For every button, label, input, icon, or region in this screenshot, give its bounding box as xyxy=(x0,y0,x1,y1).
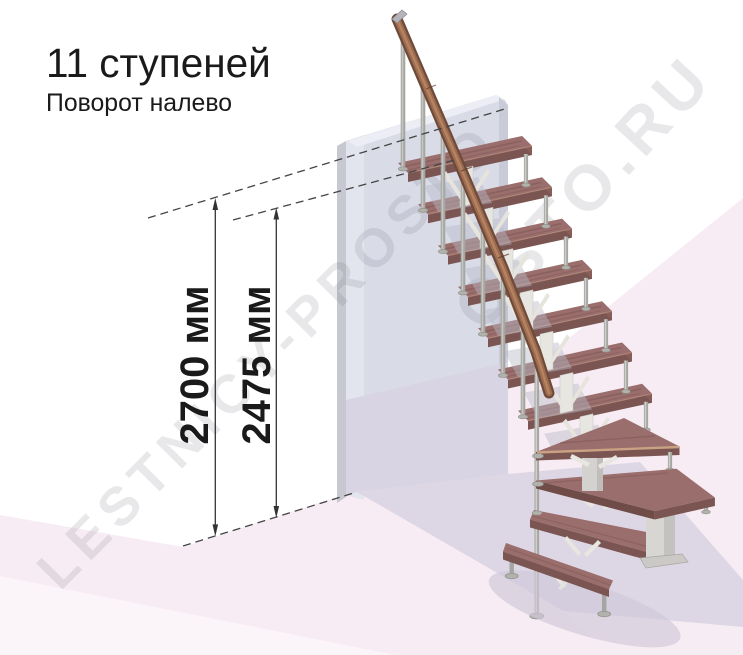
svg-text:Поворот налево: Поворот налево xyxy=(46,90,232,117)
svg-text:11 ступеней: 11 ступеней xyxy=(46,40,271,86)
svg-text:2475 мм: 2475 мм xyxy=(235,285,279,444)
svg-text:2700 мм: 2700 мм xyxy=(173,285,217,444)
